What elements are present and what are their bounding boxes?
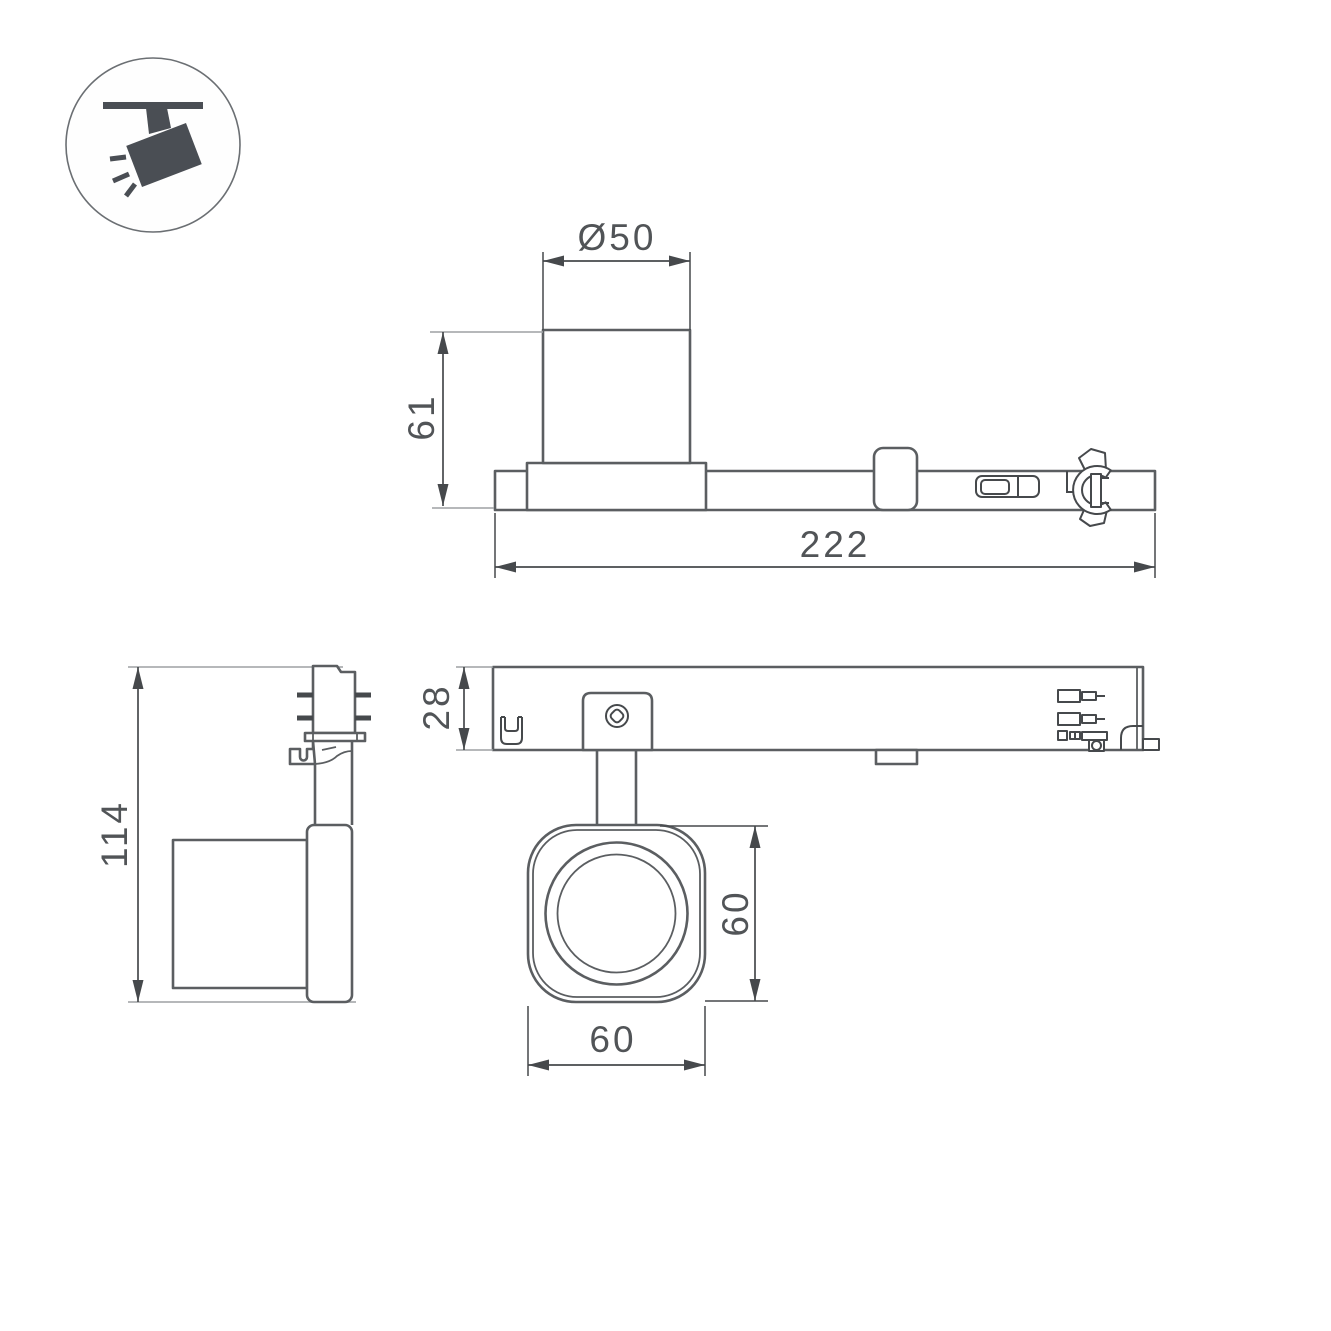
- icon-light-ray: [110, 157, 126, 159]
- front-connector-block: [313, 666, 355, 733]
- front-transition-curve: [315, 747, 352, 764]
- front-lamp-head: [173, 840, 307, 988]
- dimension-label-height-61: 61: [401, 393, 442, 440]
- dimension-height-114: 114: [94, 667, 144, 1002]
- dimension-label-head-height-60: 60: [715, 889, 756, 936]
- track-spotlight-icon: [66, 58, 240, 232]
- front-view: 114: [94, 666, 371, 1002]
- front-hook-bracket: [290, 741, 315, 764]
- front-body-column: [307, 825, 352, 1002]
- plan-view: 28 60 60: [416, 667, 1159, 1076]
- dimension-label-length-222: 222: [800, 524, 871, 565]
- icon-track-bar: [103, 102, 203, 109]
- side-view: Ø50 61 222: [401, 217, 1155, 578]
- dimension-diameter-50: Ø50: [543, 217, 690, 330]
- side-switch-knob: [981, 480, 1009, 494]
- side-latch-bar: [1091, 474, 1101, 507]
- plan-lamp-head-outer: [528, 825, 705, 1002]
- technical-drawing-canvas: Ø50 61 222: [0, 0, 1331, 1331]
- front-flange: [305, 733, 365, 741]
- dimension-label-diameter-50: Ø50: [578, 217, 657, 258]
- plan-clamp-footprint: [876, 750, 917, 764]
- side-cylinder-head: [543, 330, 690, 463]
- plan-stem: [597, 750, 636, 826]
- dimension-head-width-60: 60: [528, 1006, 705, 1076]
- dimension-label-head-width-60: 60: [589, 1019, 636, 1060]
- side-clamp-block: [874, 448, 917, 510]
- dimension-length-222: 222: [495, 513, 1155, 578]
- side-base-block: [527, 463, 706, 510]
- dimension-label-depth-28: 28: [416, 683, 457, 730]
- front-stem: [315, 741, 352, 825]
- dimension-label-height-114: 114: [94, 800, 135, 868]
- dimension-depth-28: 28: [416, 667, 493, 750]
- track-light-dimension-drawing: Ø50 61 222: [0, 0, 1331, 1331]
